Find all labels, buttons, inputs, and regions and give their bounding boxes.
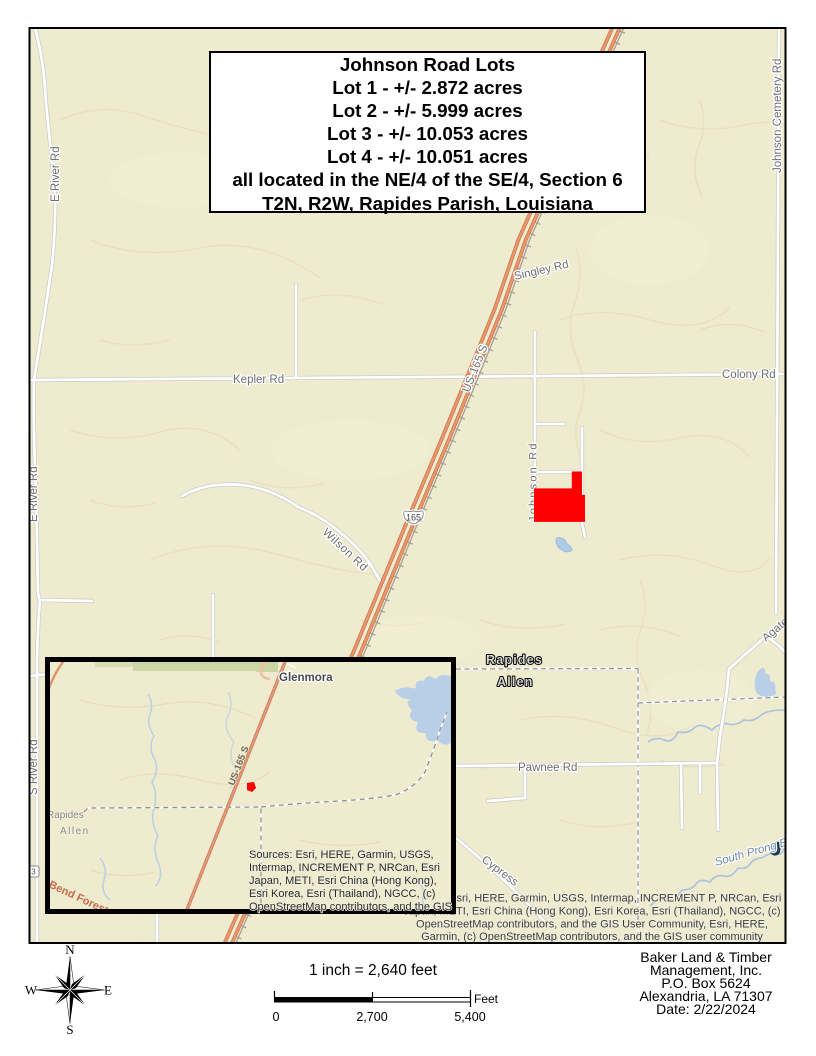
svg-text:3: 3 [31,868,36,877]
svg-text:165: 165 [406,513,421,523]
svg-text:Feet: Feet [474,992,499,1006]
svg-text:Pawnee Rd: Pawnee Rd [518,762,577,774]
svg-text:5,400: 5,400 [454,1010,485,1024]
svg-text:Esri Korea, Esri (Thailand), N: Esri Korea, Esri (Thailand), NGCC, (c) [249,888,435,900]
svg-text:Johnson Cemetery Rd: Johnson Cemetery Rd [772,59,784,173]
svg-text:Date: 2/22/2024: Date: 2/22/2024 [656,1001,756,1017]
svg-text:Allen: Allen [60,826,90,837]
svg-text:W: W [25,983,38,998]
svg-text:Sources: Esri, HERE, Garmin, U: Sources: Esri, HERE, Garmin, USGS, Inter… [403,893,782,905]
svg-text:Japan, METI, Esri China (Hong: Japan, METI, Esri China (Hong Kong), [249,875,437,887]
svg-text:OpenStreetMap contributors, an: OpenStreetMap contributors, and the GIS … [416,919,768,931]
svg-text:Japan, METI, Esri China (Hong: Japan, METI, Esri China (Hong Kong), Esr… [403,906,780,918]
svg-text:S: S [66,1022,73,1037]
svg-text:Kepler Rd: Kepler Rd [233,374,284,386]
svg-text:0: 0 [273,1010,280,1024]
svg-text:Intermap, INCREMENT P, NRCan,: Intermap, INCREMENT P, NRCan, Esri [249,862,440,874]
svg-text:Sources: Esri, HERE, Garmin, U: Sources: Esri, HERE, Garmin, USGS, [249,849,434,861]
svg-text:Colony Rd: Colony Rd [722,369,776,381]
svg-text:Rapides: Rapides [47,810,84,821]
svg-text:2,700: 2,700 [356,1010,387,1024]
svg-text:Garmin, (c) OpenStreetMap cont: Garmin, (c) OpenStreetMap contributors, … [421,931,763,943]
svg-text:1 inch = 2,640 feet: 1 inch = 2,640 feet [309,962,438,979]
svg-text:Allen: Allen [497,675,534,689]
svg-text:E: E [104,983,112,998]
svg-text:Rapides: Rapides [486,653,543,667]
svg-text:E River Rd: E River Rd [50,146,62,202]
svg-text:N: N [65,942,75,957]
svg-text:Glenmora: Glenmora [279,672,333,684]
svg-text:OpenStreetMap contributors, an: OpenStreetMap contributors, and the GIS [249,901,452,913]
